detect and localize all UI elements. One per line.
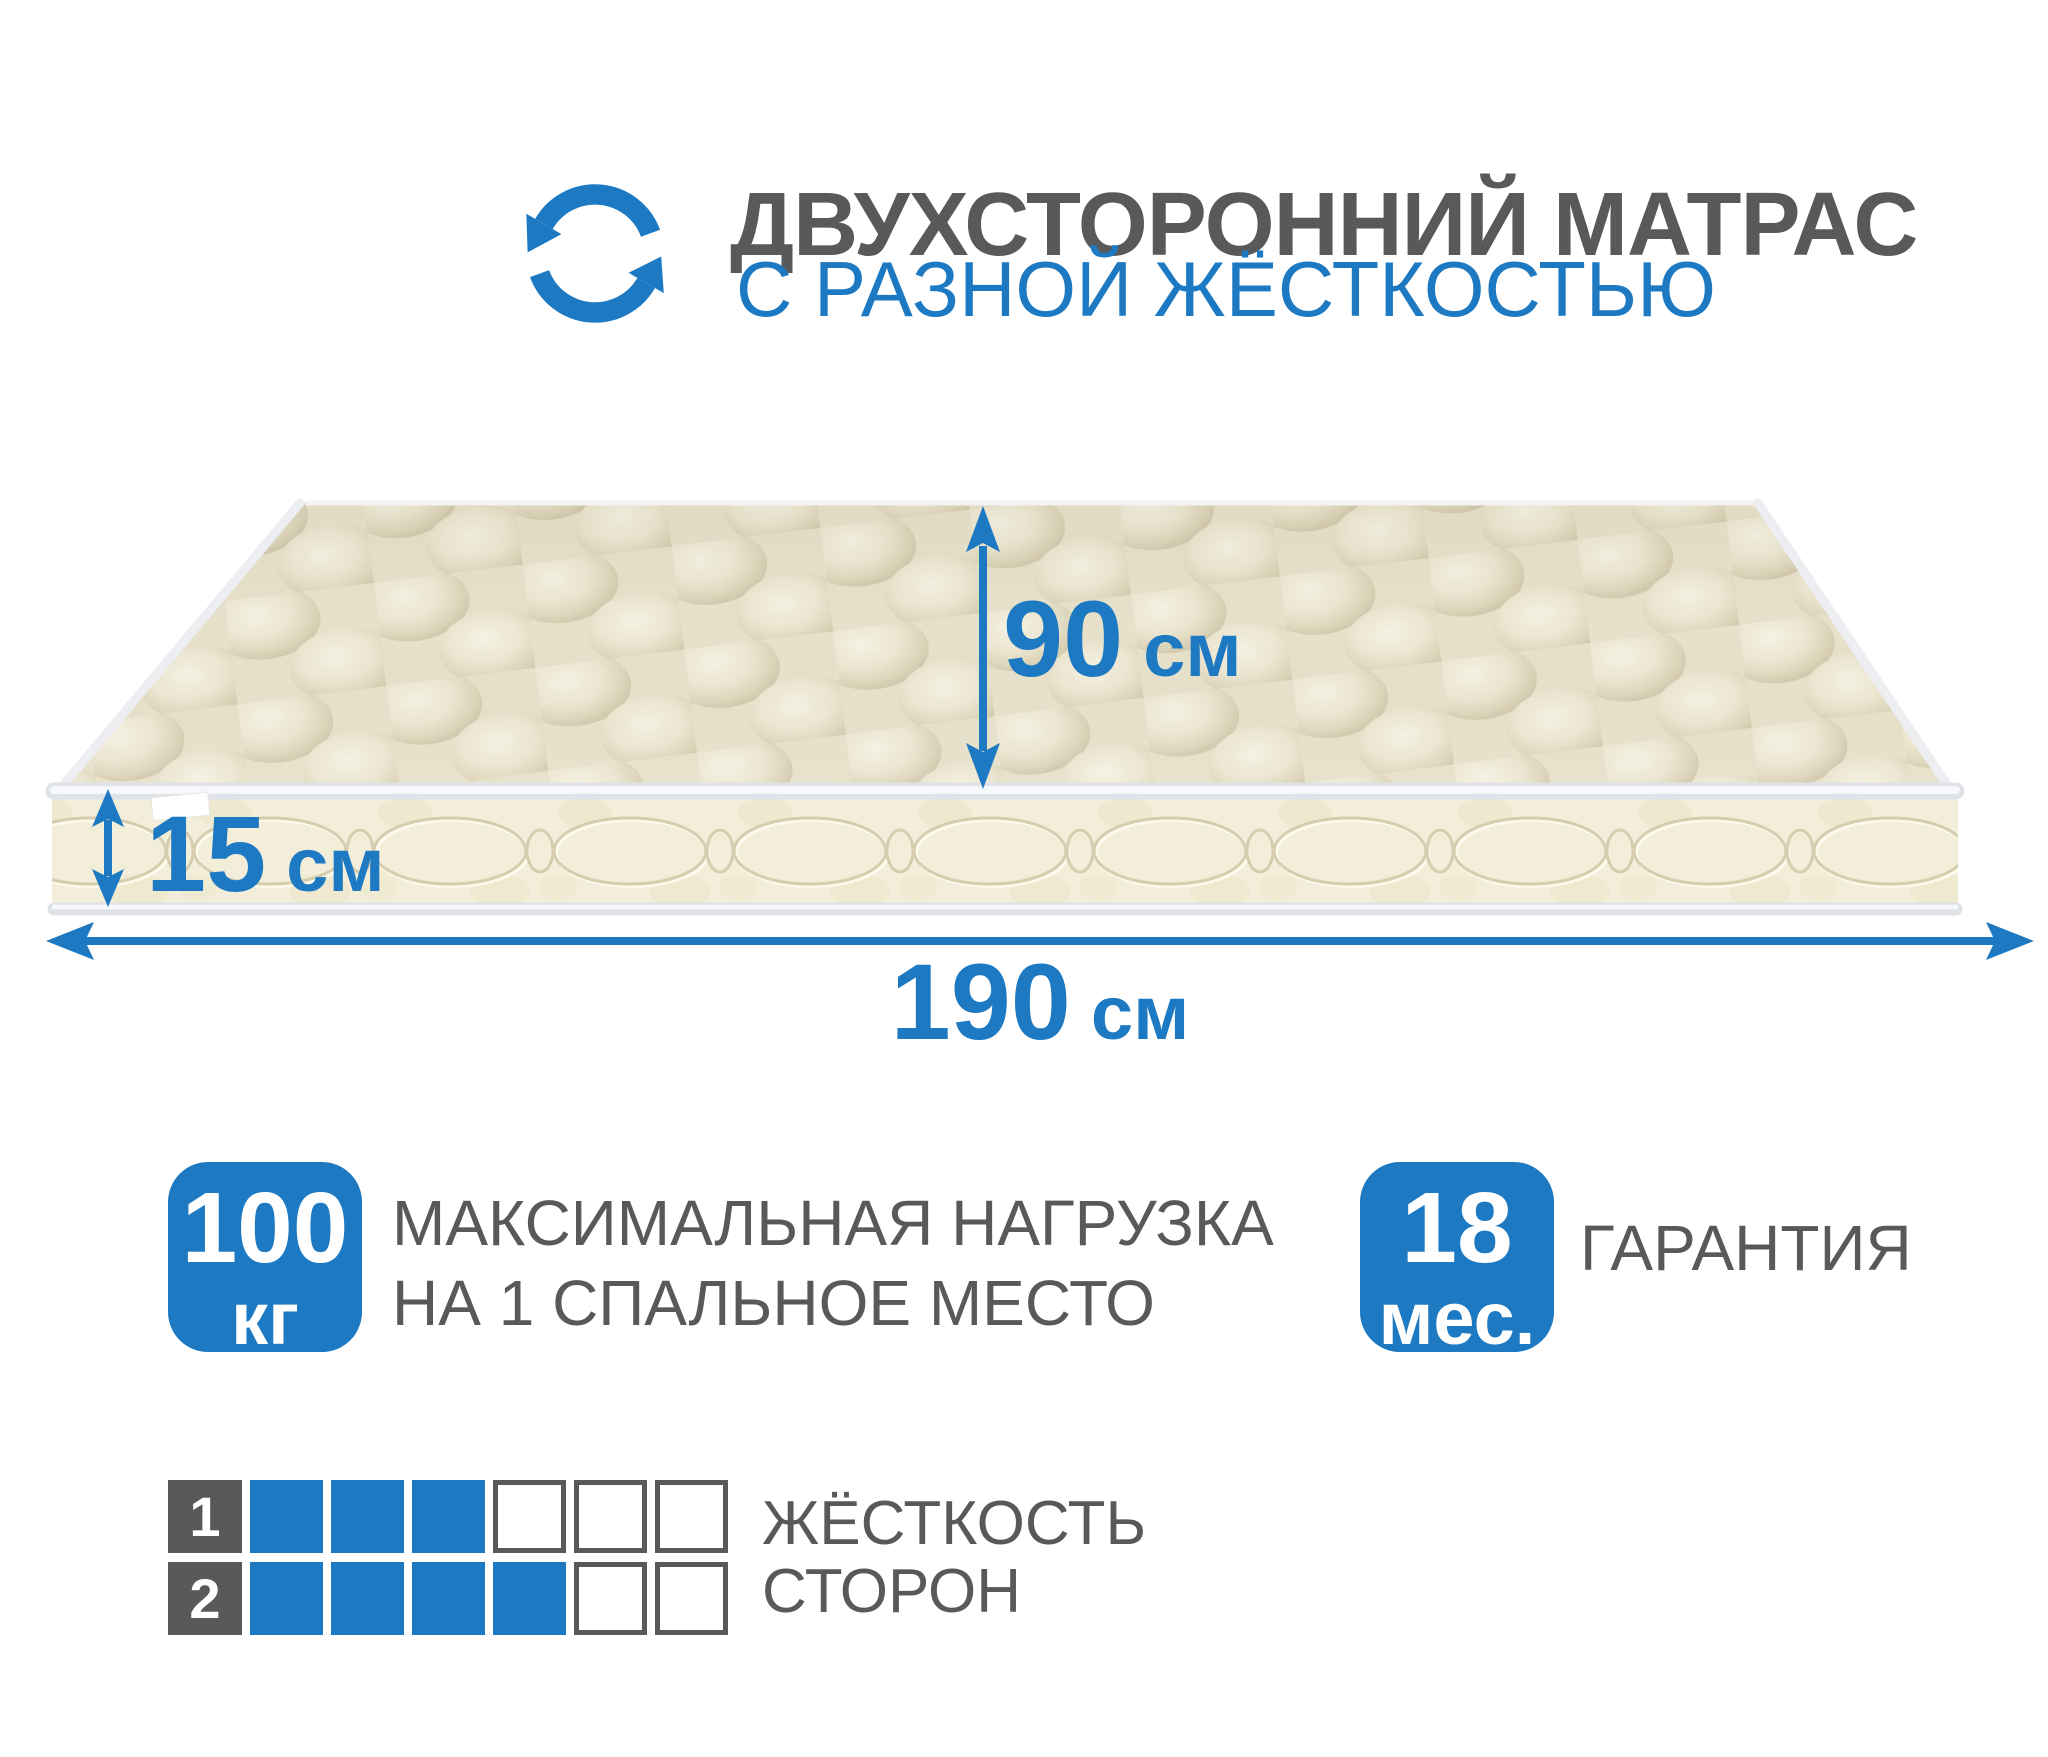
hardness-square — [412, 1480, 485, 1553]
hardness-scale-side2 — [250, 1562, 728, 1635]
hardness-scale-side1 — [250, 1480, 728, 1553]
depth-dimension-label: 90см — [1003, 585, 1242, 693]
hardness-row-label: 2 — [168, 1562, 242, 1635]
warranty-value: 18 — [1360, 1178, 1554, 1278]
hardness-square — [493, 1480, 566, 1553]
hardness-caption-line2: СТОРОН — [762, 1558, 1146, 1626]
max-load-description-line2: НА 1 СПАЛЬНОЕ МЕСТО — [392, 1263, 1274, 1343]
mattress-infographic: ДВУХСТОРОННИЙ МАТРАС С РАЗНОЙ ЖЁСТКОСТЬЮ — [0, 0, 2048, 1757]
hardness-row-side1: 1 — [168, 1480, 728, 1553]
hardness-row-side2: 2 — [168, 1562, 728, 1635]
max-load-badge: 100 кг — [168, 1162, 362, 1352]
length-dimension-label: 190см — [860, 948, 1220, 1056]
warranty-label: ГАРАНТИЯ — [1580, 1216, 1912, 1280]
hardness-square — [655, 1562, 728, 1635]
hardness-square — [412, 1562, 485, 1635]
hardness-caption: ЖЁСТКОСТЬ СТОРОН — [762, 1490, 1146, 1626]
hardness-square — [331, 1562, 404, 1635]
hardness-indicator: 1 2 — [168, 1480, 728, 1644]
hardness-square — [250, 1562, 323, 1635]
max-load-description-line1: МАКСИМАЛЬНАЯ НАГРУЗКА — [392, 1183, 1274, 1263]
warranty-unit: мес. — [1360, 1282, 1554, 1356]
thickness-dimension-label: 15см — [146, 800, 385, 908]
hardness-square — [574, 1562, 647, 1635]
warranty-badge: 18 мес. — [1360, 1162, 1554, 1352]
max-load-unit: кг — [168, 1282, 362, 1356]
product-subtitle: С РАЗНОЙ ЖЁСТКОСТЬЮ — [736, 250, 1716, 328]
hardness-square — [250, 1480, 323, 1553]
max-load-value: 100 — [168, 1178, 362, 1278]
thickness-arrow-15 — [92, 789, 124, 907]
rotate-arrows-icon — [500, 172, 686, 340]
hardness-square — [655, 1480, 728, 1553]
hardness-square — [493, 1562, 566, 1635]
hardness-square — [574, 1480, 647, 1553]
thickness-unit: см — [286, 823, 385, 908]
depth-value: 90 — [1003, 578, 1123, 699]
thickness-value: 15 — [146, 793, 266, 914]
hardness-row-label: 1 — [168, 1480, 242, 1553]
length-unit: см — [1091, 971, 1190, 1056]
depth-arrow-90 — [966, 506, 1000, 789]
depth-unit: см — [1143, 608, 1242, 693]
length-value: 190 — [891, 941, 1071, 1062]
max-load-description: МАКСИМАЛЬНАЯ НАГРУЗКА НА 1 СПАЛЬНОЕ МЕСТ… — [392, 1183, 1274, 1343]
hardness-square — [331, 1480, 404, 1553]
hardness-caption-line1: ЖЁСТКОСТЬ — [762, 1490, 1146, 1558]
